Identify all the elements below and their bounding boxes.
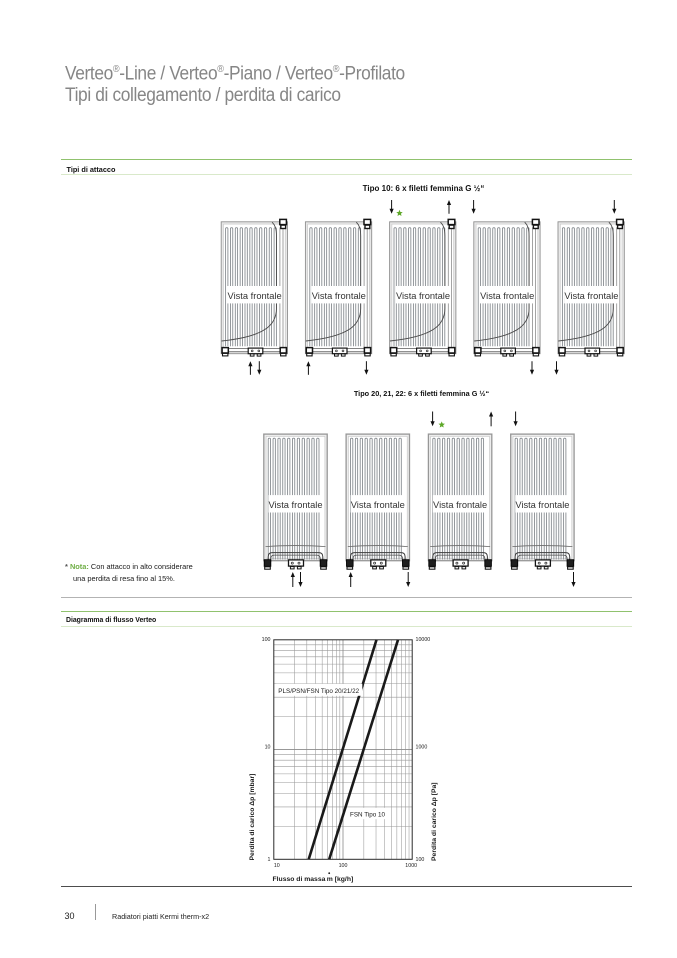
svg-text:10: 10 [265, 744, 271, 750]
svg-text:1000: 1000 [416, 744, 428, 750]
svg-text:Perdita di carico Δp [Pa]: Perdita di carico Δp [Pa] [431, 782, 438, 861]
svg-text:Flusso di massa: Flusso di massa [273, 876, 326, 883]
svg-text:m [kg/h]: m [kg/h] [327, 876, 353, 883]
svg-text:100: 100 [339, 863, 348, 869]
svg-text:Perdita di carico Δp [mbar]: Perdita di carico Δp [mbar] [249, 774, 256, 861]
svg-text:1000: 1000 [405, 863, 417, 869]
svg-text:10000: 10000 [416, 637, 431, 643]
svg-text:FSN Tipo 10: FSN Tipo 10 [350, 811, 385, 818]
svg-text:10: 10 [274, 863, 280, 869]
svg-text:100: 100 [262, 637, 271, 643]
svg-text:PLS/PSN/FSN Tipo 20/21/22: PLS/PSN/FSN Tipo 20/21/22 [278, 688, 359, 695]
svg-text:1: 1 [268, 857, 271, 863]
